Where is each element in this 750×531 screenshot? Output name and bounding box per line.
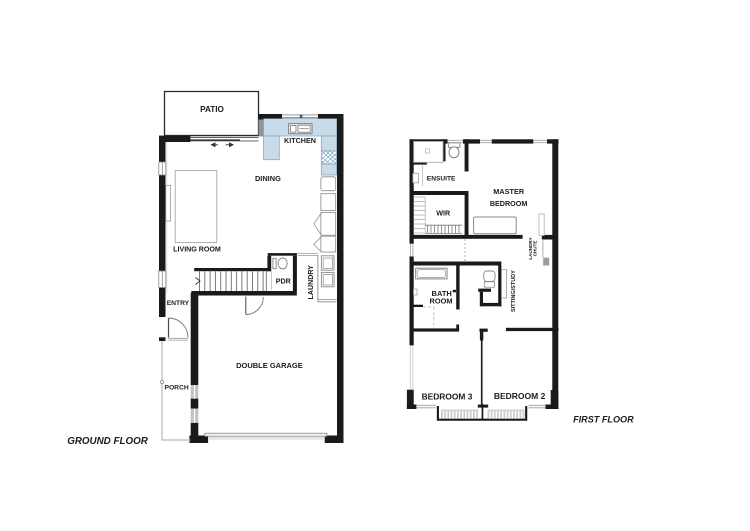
svg-text:ROOM: ROOM	[430, 296, 453, 305]
svg-text:GROUND FLOOR: GROUND FLOOR	[67, 436, 148, 447]
svg-text:PDR: PDR	[276, 277, 291, 285]
svg-text:LAUNDRY: LAUNDRY	[307, 265, 315, 300]
svg-text:PATIO: PATIO	[200, 105, 224, 114]
svg-text:WIR: WIR	[436, 209, 451, 218]
svg-text:DOUBLE GARAGE: DOUBLE GARAGE	[236, 361, 303, 370]
svg-text:SITTING/STUDY: SITTING/STUDY	[511, 270, 517, 312]
svg-text:ENTRY: ENTRY	[167, 300, 190, 307]
svg-text:FIRST FLOOR: FIRST FLOOR	[573, 414, 634, 424]
svg-text:BEDROOM: BEDROOM	[490, 199, 528, 208]
svg-text:PORCH: PORCH	[165, 385, 189, 392]
svg-text:ENSUITE: ENSUITE	[427, 175, 456, 182]
svg-text:BEDROOM 2: BEDROOM 2	[494, 391, 546, 401]
svg-text:CHUTE: CHUTE	[533, 241, 538, 257]
svg-text:LIVING ROOM: LIVING ROOM	[173, 245, 221, 253]
svg-text:DINING: DINING	[255, 174, 281, 183]
svg-text:BEDROOM 3: BEDROOM 3	[422, 391, 473, 401]
svg-text:MASTER: MASTER	[493, 187, 525, 196]
svg-text:KITCHEN: KITCHEN	[284, 136, 316, 145]
